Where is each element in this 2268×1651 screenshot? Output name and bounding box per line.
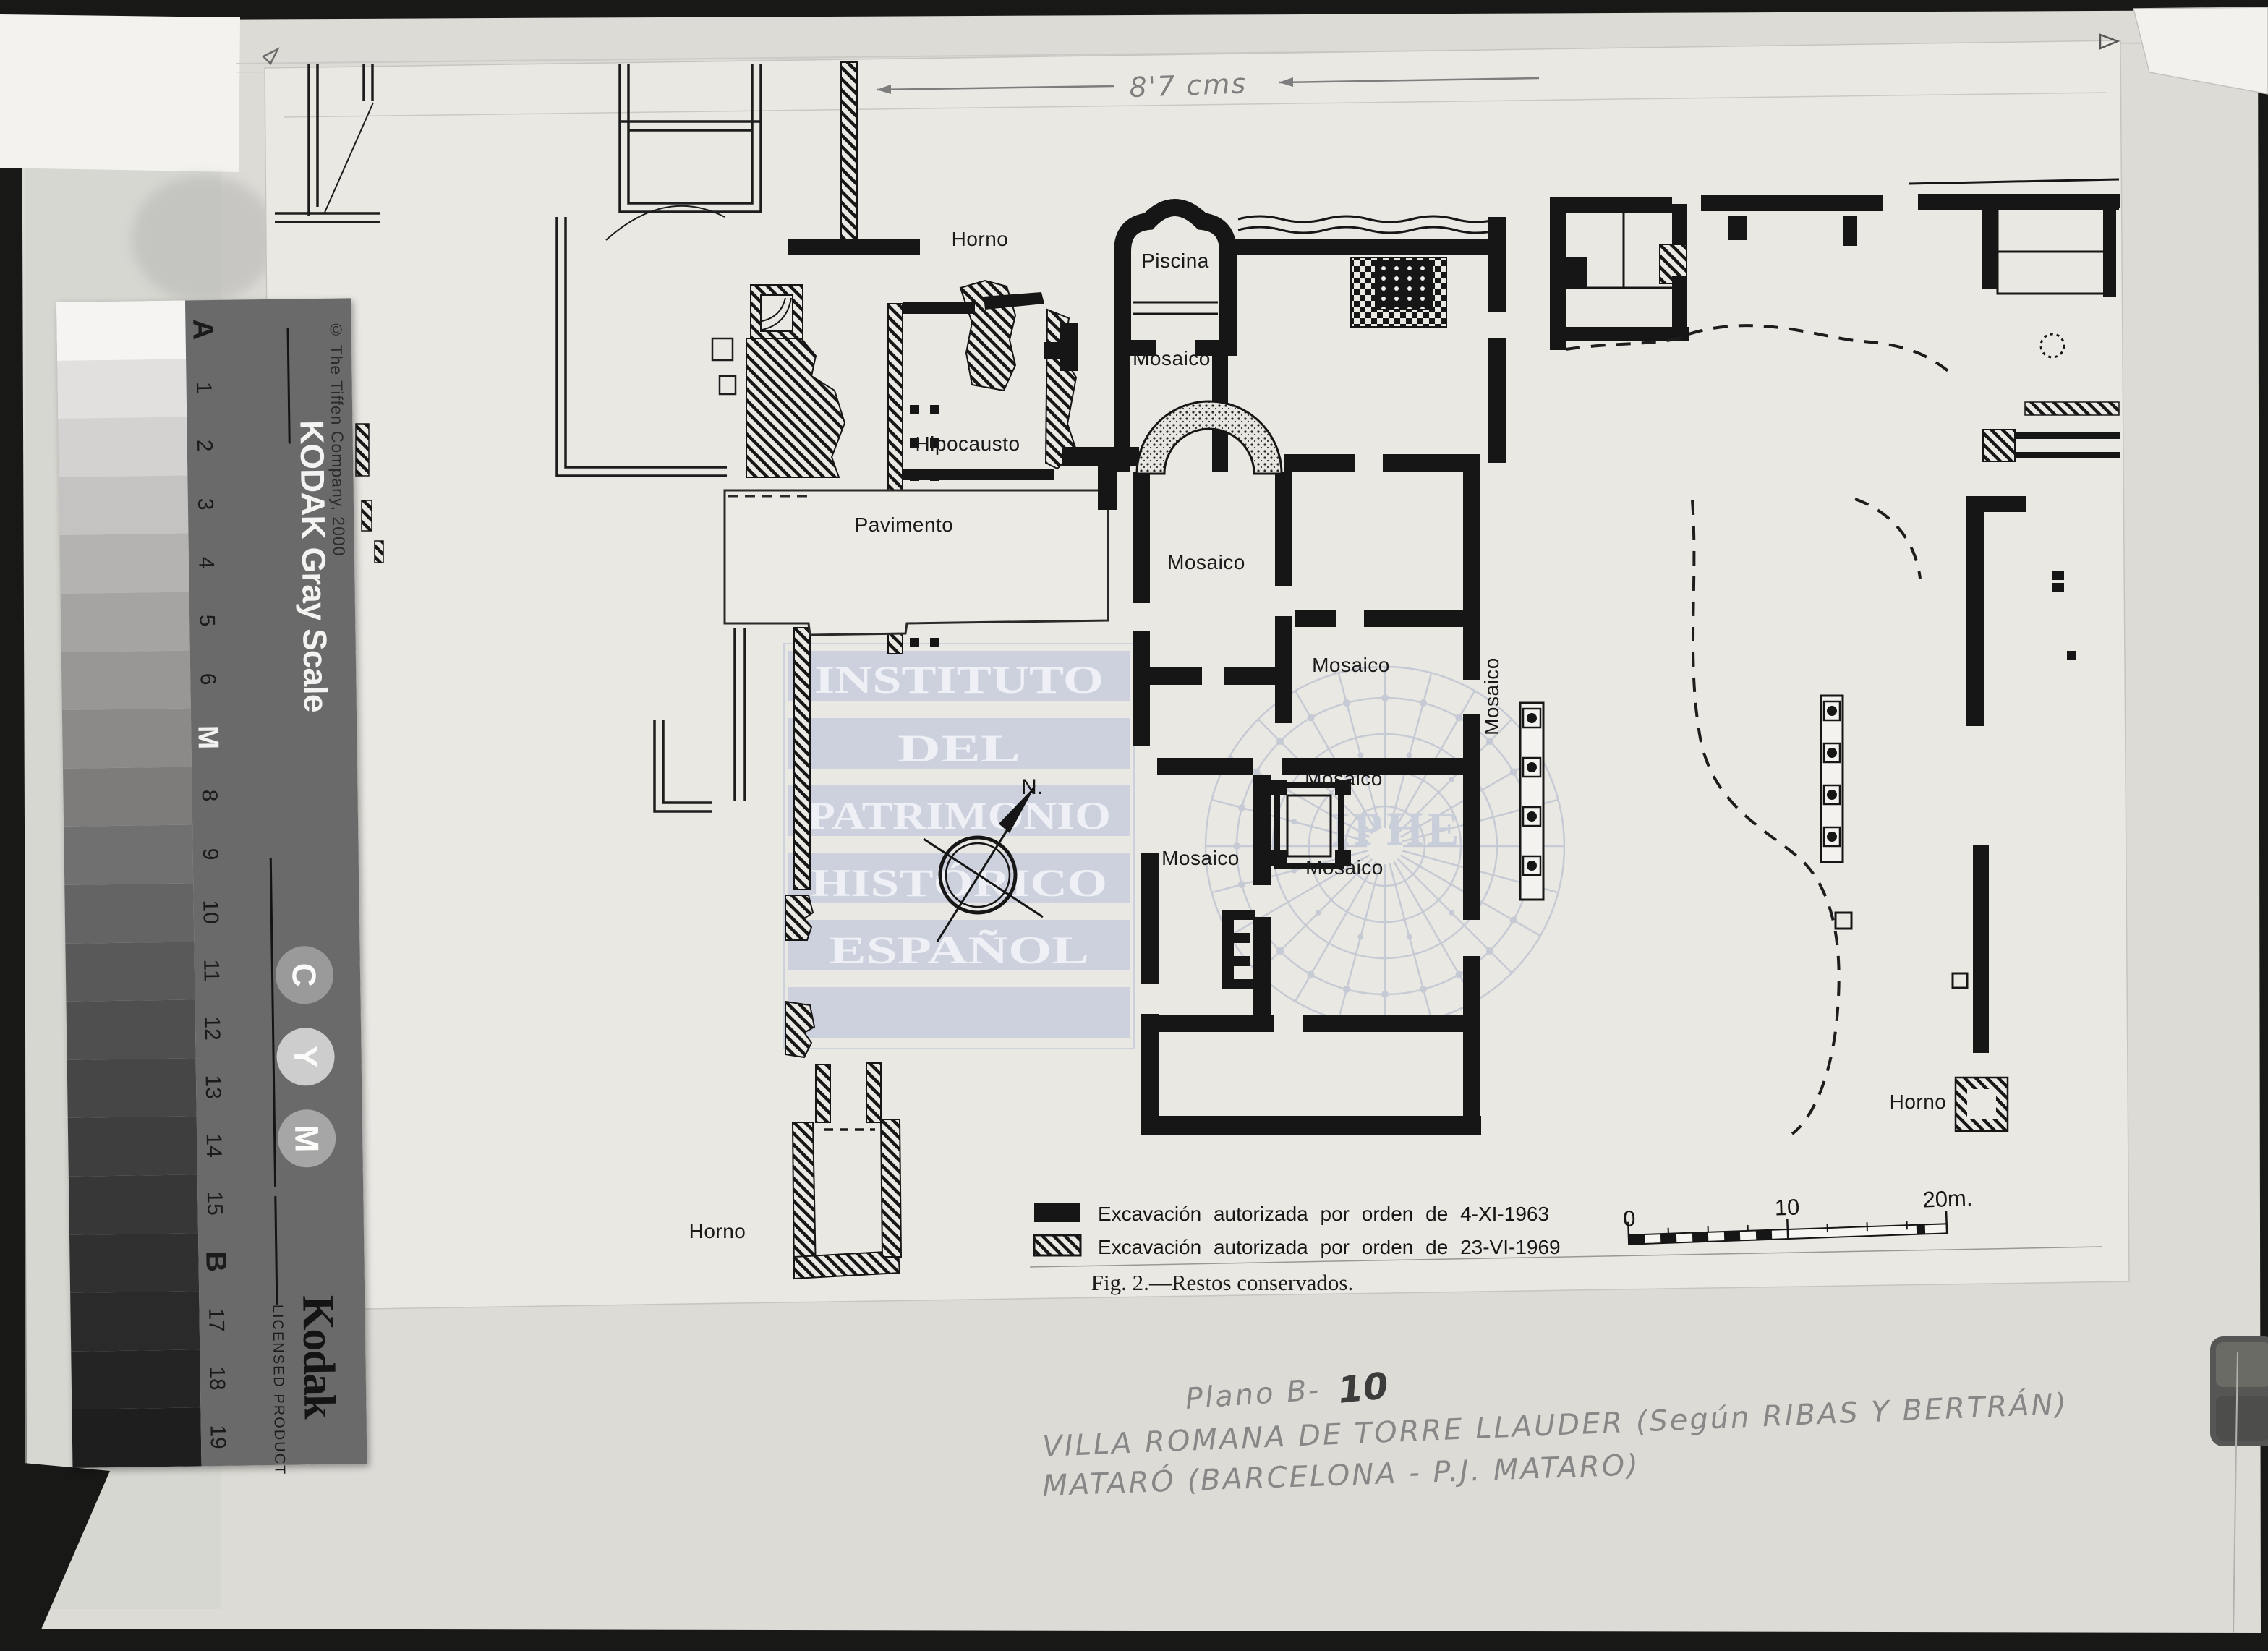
room-label-horno: Horno	[1890, 1091, 1947, 1113]
card-rule	[287, 328, 291, 444]
gray-step-15	[69, 1174, 198, 1234]
gray-step-5	[61, 592, 190, 652]
scale-tick-20: 20m.	[1922, 1185, 1973, 1212]
watermark-line: INSTITUTO	[814, 658, 1104, 701]
room-label-mosaico: Mosaico	[1480, 657, 1503, 735]
room-label-mosaico: Mosaico	[1305, 767, 1383, 790]
dimension-note: 8'7 cms	[1129, 67, 1248, 103]
ink-dot-m: M	[278, 1109, 336, 1168]
card-rule	[270, 858, 276, 1187]
room-label-mosaico: Mosaico	[1167, 551, 1245, 573]
step-number-M: M	[191, 708, 225, 767]
gray-step-1	[57, 359, 187, 419]
watermark-line: DEL	[898, 727, 1020, 770]
step-number-1: 1	[186, 358, 220, 417]
step-number-10: 10	[193, 883, 227, 942]
step-number-12: 12	[195, 999, 229, 1058]
legend-entry-1963: Excavación autorizada por orden de 4-XI-…	[1098, 1203, 1549, 1225]
gray-step-14	[68, 1117, 197, 1177]
room-label-mosaico: Mosaico	[1133, 347, 1211, 370]
step-number-2: 2	[187, 417, 221, 475]
top-left-white-corner	[0, 14, 240, 172]
watermark-line: ESPAÑOL	[829, 929, 1089, 972]
room-label-mosaico: Mosaico	[1312, 654, 1390, 676]
room-label-mosaico: Mosaico	[1161, 847, 1240, 869]
binder-clip	[2210, 1336, 2268, 1446]
horno-furnace-right	[1956, 1078, 2008, 1131]
ink-dot-y: Y	[276, 1028, 335, 1086]
step-number-17: 17	[199, 1291, 233, 1349]
gray-step-A	[56, 301, 186, 361]
legend-entry-1969: Excavación autorizada por orden de 23-VI…	[1098, 1236, 1561, 1258]
step-number-11: 11	[194, 941, 228, 999]
card-title: KODAK Gray Scale	[292, 420, 336, 712]
card-rule	[274, 1196, 278, 1305]
step-number-15: 15	[197, 1174, 231, 1233]
step-number-B: B	[198, 1232, 232, 1291]
gray-scale-label-area: A123456M89101112131415B171819 © The Tiff…	[185, 298, 367, 1466]
gray-step-11	[65, 942, 195, 1002]
gray-step-6	[61, 650, 191, 710]
room-label-hipocausto: Hipocausto	[915, 432, 1020, 455]
gray-step-13	[67, 1058, 197, 1118]
step-number-14: 14	[197, 1116, 231, 1174]
step-number-A: A	[185, 300, 219, 359]
step-number-4: 4	[188, 533, 222, 592]
gray-step-18	[71, 1349, 200, 1409]
room-label-pavimento: Pavimento	[855, 513, 954, 536]
gray-step-M	[62, 709, 192, 769]
step-number-6: 6	[190, 649, 224, 708]
step-number-8: 8	[192, 767, 226, 825]
step-number-5: 5	[189, 592, 223, 650]
step-number-3: 3	[187, 475, 221, 534]
gray-step-8	[63, 767, 192, 827]
figure-caption: Fig. 2.—Restos conservados.	[1091, 1270, 1354, 1295]
kodak-gray-scale-card: A123456M89101112131415B171819 © The Tiff…	[56, 298, 367, 1468]
step-number-13: 13	[196, 1058, 230, 1117]
ink-dot-c: C	[275, 946, 333, 1004]
gray-step-12	[67, 1000, 196, 1060]
step-number-9: 9	[192, 824, 226, 883]
gray-step-9	[64, 825, 193, 885]
gray-step-19	[72, 1408, 201, 1468]
room-label-mosaico: Mosaico	[1305, 856, 1384, 879]
legend-swatch-hatched	[1034, 1235, 1080, 1255]
step-number-19: 19	[200, 1407, 234, 1466]
watermark-acronym: IPHE	[1331, 803, 1462, 856]
gray-step-3	[59, 475, 188, 535]
gray-step-10	[64, 883, 194, 943]
gray-scale-steps	[56, 301, 201, 1468]
scale-tick-10: 10	[1774, 1194, 1800, 1220]
room-label-horno: Horno	[689, 1220, 746, 1242]
licensed-product-label: LICENSED PRODUCT	[268, 1305, 287, 1476]
watermark-line: HISTÓRICO	[811, 861, 1107, 905]
card-shadow	[132, 175, 276, 302]
room-label-horno: Horno	[952, 228, 1009, 250]
plano-number: 10	[1336, 1365, 1390, 1412]
step-number-18: 18	[200, 1349, 234, 1408]
watermark-line: PATRIMONIO	[807, 794, 1111, 837]
scale-tick-0: 0	[1623, 1206, 1636, 1232]
gray-step-17	[70, 1291, 200, 1351]
gray-step-4	[60, 534, 189, 594]
archival-scan-photo: 8'7 cms C043 INSTITUTO DEL PATRIMONIO HI…	[0, 0, 2268, 1651]
watermark-band	[788, 987, 1130, 1038]
room-label-piscina: Piscina	[1141, 249, 1209, 272]
north-label: N.	[1021, 775, 1043, 799]
legend-swatch-solid	[1034, 1203, 1080, 1222]
gray-step-B	[69, 1233, 199, 1293]
kodak-brand: Kodak	[291, 1295, 344, 1418]
gray-step-2	[58, 417, 187, 477]
